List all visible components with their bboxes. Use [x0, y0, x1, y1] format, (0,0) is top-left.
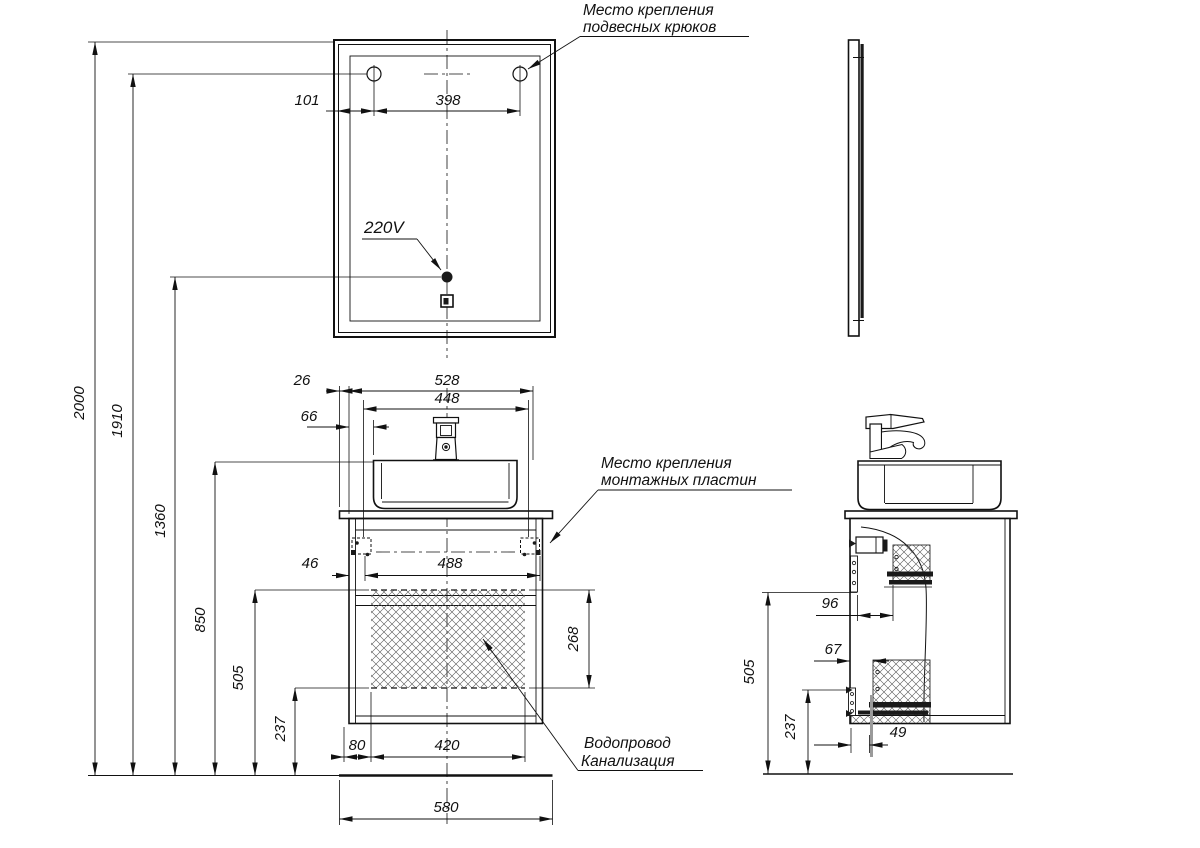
plumb-note-line1: Водопровод	[584, 735, 671, 752]
dim-label-1910: 1910	[109, 404, 126, 438]
dim-label-1360: 1360	[152, 504, 169, 538]
dim-label-26: 26	[293, 372, 311, 389]
dim-label-850: 850	[192, 607, 209, 633]
vessel-sink-side	[858, 461, 1001, 510]
dim-label-96: 96	[822, 595, 839, 612]
dim-label-420: 420	[434, 737, 460, 754]
dim-label-580: 580	[433, 799, 459, 816]
power-outlet-point	[442, 272, 453, 283]
hooks-note-line1: Место крепления	[583, 2, 714, 19]
dim-label-46: 46	[302, 555, 319, 572]
dim-label-237-front: 237	[272, 716, 289, 743]
plates-note-line1: Место крепления	[601, 455, 732, 472]
dim-label-505-front: 505	[230, 665, 247, 691]
vanity-front-view	[340, 388, 553, 824]
mounting-plate-right	[521, 538, 541, 556]
countertop-side	[845, 511, 1017, 519]
dim-label-505-side: 505	[741, 659, 758, 685]
touch-switch-icon	[441, 295, 453, 307]
annotation-hooks: Место крепления подвесных крюков	[528, 2, 749, 69]
dim-label-528: 528	[434, 372, 460, 389]
dim-plumb-zone-height: 268	[529, 590, 595, 688]
technical-drawing-page: 101 398 Место крепления подвесных крюков…	[0, 0, 1200, 848]
plumb-note-line2: Канализация	[581, 753, 675, 770]
faucet-side	[866, 415, 925, 459]
mounting-plate-left	[351, 538, 371, 556]
dim-label-398: 398	[435, 92, 461, 109]
hooks-note-line2: подвесных крюков	[583, 19, 716, 36]
power-label: 220V	[363, 218, 405, 237]
mirror-side-view	[849, 40, 865, 336]
dim-label-488: 488	[437, 555, 463, 572]
faucet-front	[433, 418, 459, 461]
countertop-front	[340, 511, 553, 519]
dim-label-268: 268	[565, 626, 582, 653]
dim-label-80: 80	[349, 737, 366, 754]
lower-bracket-side	[846, 687, 856, 718]
vanity-side-view	[845, 415, 1017, 758]
plumbing-zone-front	[371, 590, 525, 688]
plates-note-line2: монтажных пластин	[601, 472, 757, 489]
dim-vanity-bottom: 80 420 580	[331, 692, 553, 825]
vanity-installation-drawing: 101 398 Место крепления подвесных крюков…	[0, 0, 1200, 848]
mirror-outer-frame	[334, 40, 555, 337]
dim-label-448: 448	[434, 390, 460, 407]
mirror-front-view	[334, 30, 555, 358]
dim-label-49: 49	[890, 724, 907, 741]
dim-label-2000: 2000	[71, 386, 88, 421]
dim-label-237-side: 237	[782, 714, 799, 741]
dim-label-66: 66	[301, 408, 318, 425]
vessel-sink-front	[374, 461, 518, 509]
dim-mounting-plates: 46 488	[302, 555, 540, 581]
dim-label-67: 67	[825, 641, 842, 658]
annotation-plates: Место крепления монтажных пластин	[550, 455, 792, 543]
dim-label-101: 101	[294, 92, 319, 109]
